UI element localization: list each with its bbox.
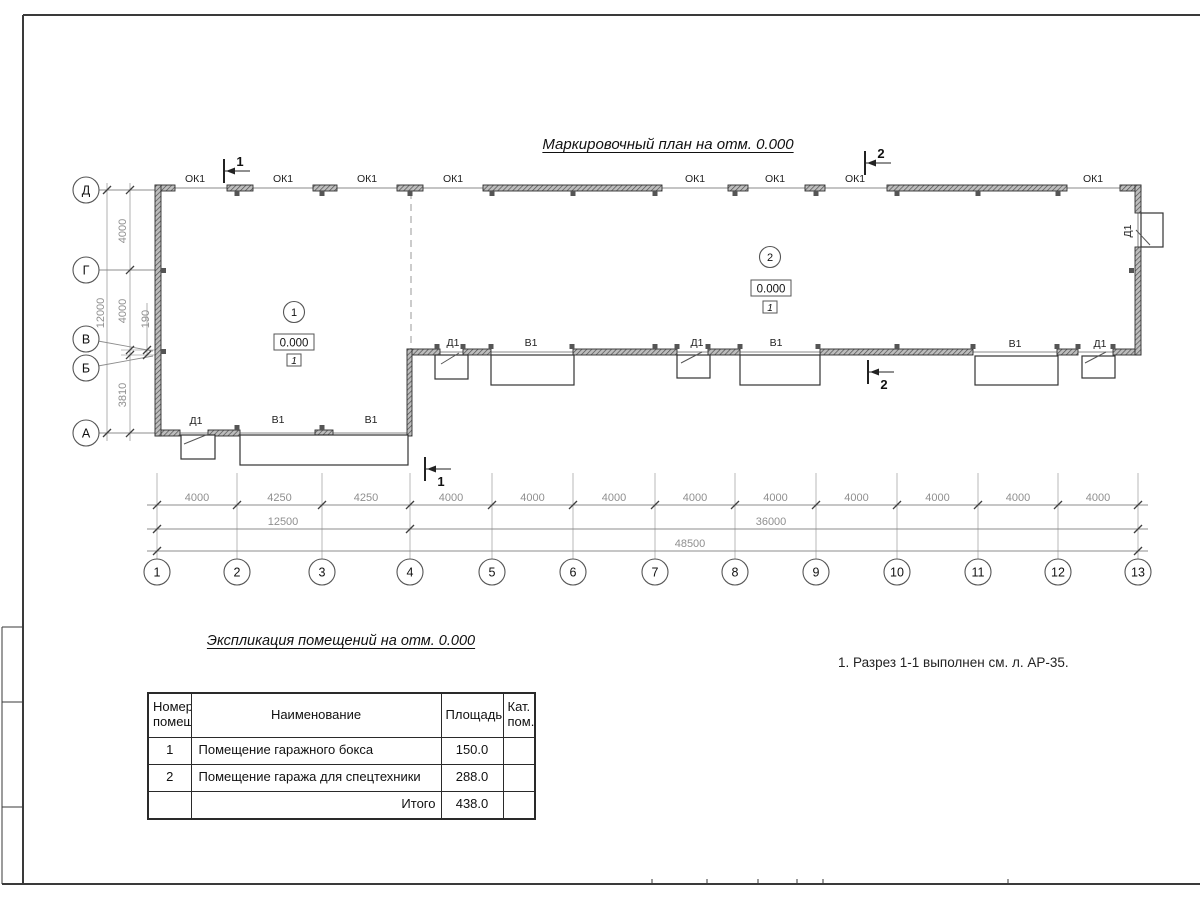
elevation-mark-value: 0.000 <box>757 284 786 296</box>
pilaster-tick <box>570 344 575 349</box>
door-label: Д1 <box>1094 338 1107 350</box>
pilaster-tick <box>675 344 680 349</box>
col-header-name: Наименование <box>191 693 441 737</box>
axis-bubble-label: 4 <box>407 566 414 580</box>
window-label: ОК1 <box>273 173 293 185</box>
elevation-mark-value: 0.000 <box>280 338 309 350</box>
axis-bubble-label: Г <box>83 264 90 278</box>
room-area: 150.0 <box>441 737 503 764</box>
dim-label: 4250 <box>354 492 378 504</box>
wall <box>728 185 748 191</box>
section-arrow-icon <box>427 466 436 473</box>
pilaster-tick <box>653 191 658 196</box>
total-label: Итого <box>191 791 441 819</box>
room-number: 1 <box>148 737 191 764</box>
wall <box>820 349 973 355</box>
section-number: 2 <box>880 377 887 392</box>
explication-table: Номер помещ. Наименование Площадь Кат. п… <box>147 692 536 820</box>
door-label: Д1 <box>1122 224 1134 237</box>
wall <box>1135 247 1141 355</box>
room-number-label: 2 <box>767 252 773 264</box>
wall <box>227 185 253 191</box>
floor-type-label: 1 <box>767 303 773 314</box>
pilaster-tick <box>571 191 576 196</box>
door-apron <box>240 435 408 465</box>
section-note: 1. Разрез 1-1 выполнен см. л. АР-35. <box>838 655 1069 670</box>
gate-label: В1 <box>365 414 378 426</box>
pilaster-tick <box>435 344 440 349</box>
axis-bubble-label: А <box>82 427 91 441</box>
window-label: ОК1 <box>685 173 705 185</box>
pilaster-tick <box>161 349 166 354</box>
pilaster-tick <box>733 191 738 196</box>
pilaster-tick <box>489 344 494 349</box>
dim-label: 4000 <box>117 299 129 323</box>
drawing-sheet: { "sheet": { "plan_title": "Маркировочны… <box>0 0 1200 900</box>
pilaster-tick <box>895 344 900 349</box>
wall <box>1135 185 1141 213</box>
door-apron <box>740 355 820 385</box>
pilaster-tick <box>971 344 976 349</box>
wall <box>573 349 677 355</box>
gate-label: В1 <box>272 414 285 426</box>
wall <box>483 185 662 191</box>
axis-bubble-label: 10 <box>890 566 904 580</box>
dim-label: 12000 <box>95 298 107 329</box>
axis-bubble-label: 13 <box>1131 566 1145 580</box>
door-label: Д1 <box>691 337 704 349</box>
window-label: ОК1 <box>185 173 205 185</box>
axis-bubble-label: Б <box>82 362 90 376</box>
section-number: 1 <box>236 154 243 169</box>
pilaster-tick <box>1111 344 1116 349</box>
window-label: ОК1 <box>357 173 377 185</box>
col-header-area: Площадь <box>441 693 503 737</box>
axis-bubble-label: 3 <box>319 566 326 580</box>
dim-label: 4000 <box>185 492 209 504</box>
room-number: 2 <box>148 764 191 791</box>
door-apron <box>435 355 468 379</box>
pilaster-tick <box>1056 191 1061 196</box>
dim-label: 4000 <box>844 492 868 504</box>
dim-label: 4000 <box>602 492 626 504</box>
pilaster-tick <box>235 191 240 196</box>
pilaster-tick <box>408 191 413 196</box>
pilaster-tick <box>461 344 466 349</box>
table-row: 2 Помещение гаража для спецтехники 288.0 <box>148 764 535 791</box>
pilaster-tick <box>738 344 743 349</box>
pilaster-tick <box>1055 344 1060 349</box>
dim-label: 190 <box>140 310 152 328</box>
axis-bubble-label: 5 <box>489 566 496 580</box>
wall <box>155 185 161 436</box>
door-label: Д1 <box>447 337 460 349</box>
pilaster-tick <box>490 191 495 196</box>
gate-label: В1 <box>525 337 538 349</box>
total-category-cell <box>503 791 535 819</box>
axis-leader-line <box>98 341 153 351</box>
wall <box>1057 349 1078 355</box>
wall <box>313 185 337 191</box>
pilaster-tick <box>320 191 325 196</box>
gate-label: В1 <box>770 337 783 349</box>
window-label: ОК1 <box>845 173 865 185</box>
section-number: 2 <box>877 146 884 161</box>
pilaster-tick <box>816 344 821 349</box>
floor-type-label: 1 <box>291 356 297 367</box>
section-arrow-icon <box>226 168 235 175</box>
window-label: ОК1 <box>1083 173 1103 185</box>
axis-bubble-label: 9 <box>813 566 820 580</box>
room-category <box>503 764 535 791</box>
axis-bubble-label: 11 <box>972 566 985 580</box>
dim-label: 4000 <box>1086 492 1110 504</box>
dim-label: 4000 <box>117 219 129 243</box>
wall <box>397 185 423 191</box>
section-arrow-icon <box>870 369 879 376</box>
col-header-number: Номер помещ. <box>148 693 191 737</box>
window-label: ОК1 <box>765 173 785 185</box>
dim-label: 4000 <box>683 492 707 504</box>
wall <box>805 185 825 191</box>
wall <box>887 185 1067 191</box>
table-total-row: Итого 438.0 <box>148 791 535 819</box>
axis-bubble-label: 1 <box>154 566 161 580</box>
pilaster-tick <box>814 191 819 196</box>
door-apron <box>491 355 574 385</box>
dim-label: 4000 <box>925 492 949 504</box>
door-apron <box>1082 356 1115 378</box>
total-empty-cell <box>148 791 191 819</box>
door-apron <box>677 355 710 378</box>
door-apron <box>975 356 1058 385</box>
dim-label: 3810 <box>117 383 129 407</box>
room-area: 288.0 <box>441 764 503 791</box>
axis-bubble-label: 12 <box>1051 566 1065 580</box>
pilaster-tick <box>1076 344 1081 349</box>
pilaster-tick <box>320 425 325 430</box>
pilaster-tick <box>235 425 240 430</box>
section-arrow-icon <box>867 160 876 167</box>
dim-label: 4000 <box>763 492 787 504</box>
wall <box>708 349 740 355</box>
dim-label: 48500 <box>675 538 706 550</box>
wall <box>463 349 491 355</box>
dim-label: 4000 <box>520 492 544 504</box>
total-area: 438.0 <box>441 791 503 819</box>
axis-bubble-label: 8 <box>732 566 739 580</box>
wall <box>407 349 412 436</box>
room-number-label: 1 <box>291 307 297 319</box>
gate-label: В1 <box>1009 338 1022 350</box>
pilaster-tick <box>895 191 900 196</box>
window-label: ОК1 <box>443 173 463 185</box>
dim-label: 12500 <box>268 516 299 528</box>
table-row: 1 Помещение гаражного бокса 150.0 <box>148 737 535 764</box>
axis-bubble-label: Д <box>82 184 91 198</box>
room-name: Помещение гаража для спецтехники <box>191 764 441 791</box>
room-category <box>503 737 535 764</box>
dim-label: 4000 <box>439 492 463 504</box>
explication-title: Экспликация помещений на отм. 0.000 <box>198 633 484 649</box>
dim-label: 4000 <box>1006 492 1030 504</box>
section-number: 1 <box>437 474 444 489</box>
axis-bubble-label: 2 <box>234 566 241 580</box>
axis-bubble-label: В <box>82 333 90 347</box>
pilaster-tick <box>976 191 981 196</box>
axis-bubble-label: 7 <box>652 566 659 580</box>
dim-label: 36000 <box>756 516 787 528</box>
plan-title: Маркировочный план на отм. 0.000 <box>538 136 798 153</box>
pilaster-tick <box>1129 268 1134 273</box>
room-name: Помещение гаражного бокса <box>191 737 441 764</box>
col-header-category: Кат. пом. <box>503 693 535 737</box>
dim-label: 4250 <box>267 492 291 504</box>
door-porch <box>1141 213 1163 247</box>
pilaster-tick <box>161 268 166 273</box>
pilaster-tick <box>653 344 658 349</box>
door-label: Д1 <box>190 415 203 427</box>
axis-bubble-label: 6 <box>570 566 577 580</box>
pilaster-tick <box>706 344 711 349</box>
